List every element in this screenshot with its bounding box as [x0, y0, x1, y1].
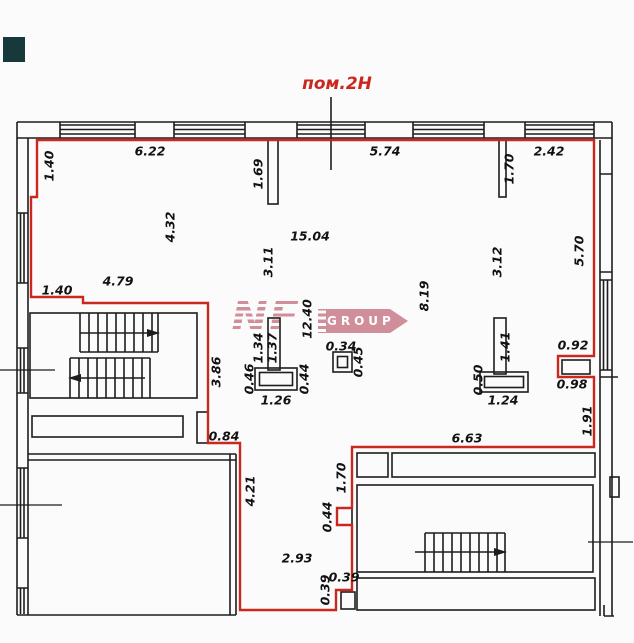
left-staircase — [30, 313, 197, 398]
window-hatch — [17, 213, 28, 283]
right-t-column — [480, 318, 528, 392]
small-column — [337, 508, 352, 525]
outer-walls — [0, 122, 633, 616]
door-niche — [562, 360, 590, 374]
window-hatch — [413, 122, 484, 138]
lower-left-room — [28, 454, 236, 615]
floor-plan-canvas: NF GROUP — [0, 0, 634, 643]
plan-drawing — [0, 0, 634, 643]
stair-landing — [32, 412, 208, 443]
center-square-column — [333, 352, 352, 372]
window-hatch — [600, 280, 612, 370]
partition-stubs — [268, 97, 506, 204]
bottom-stairs — [415, 533, 505, 572]
window-hatch — [525, 122, 594, 138]
window-hatch — [17, 588, 28, 614]
window-hatch — [174, 122, 245, 138]
small-column — [341, 592, 355, 609]
bottom-right-block — [337, 453, 595, 610]
window-hatch — [60, 122, 135, 138]
window-hatch — [17, 468, 28, 538]
room-title: пом.2Н — [302, 74, 372, 94]
center-t-column — [255, 318, 297, 390]
